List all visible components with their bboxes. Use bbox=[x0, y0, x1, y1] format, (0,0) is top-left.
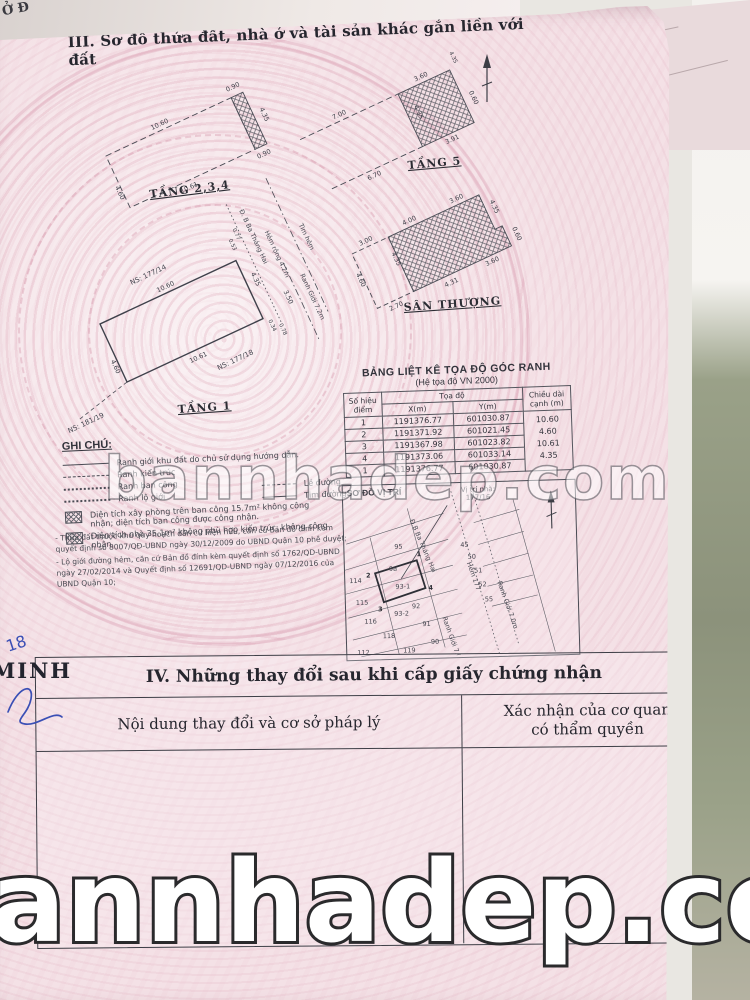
dim-t1-350: 3.50 bbox=[282, 289, 295, 306]
watermark-bottom: annhadep.com bbox=[0, 838, 750, 968]
section-4-title: IV. Những thay đổi sau khi cấp giấy chứn… bbox=[36, 652, 712, 699]
dim-t1-034: 0.34 bbox=[266, 319, 277, 333]
corner-3: 3 bbox=[378, 605, 383, 613]
subject-parcel-outline bbox=[375, 560, 426, 602]
parcel-55: 55 bbox=[485, 595, 494, 603]
parcel-91: 91 bbox=[422, 620, 431, 628]
label-ns-181-19: NS: 181/19 bbox=[67, 411, 106, 435]
solid-line-icon bbox=[63, 463, 109, 466]
signature bbox=[2, 680, 72, 730]
dim-st-ext-left: 4.60 bbox=[354, 272, 367, 289]
parcel-93-1: 93-1 bbox=[395, 582, 410, 590]
dim-t5-corner: 4.35 bbox=[447, 51, 458, 65]
parcel-114: 114 bbox=[349, 577, 362, 585]
north-arrow-icon bbox=[482, 54, 492, 102]
dim-st-step: 0.60 bbox=[510, 225, 523, 242]
watermark-middle: bannhadep.com bbox=[104, 444, 671, 514]
dotted-line-icon bbox=[64, 486, 110, 490]
parcel-50: 50 bbox=[468, 553, 477, 561]
col-confirm-header: Xác nhận của cơ quan có thẩm quyền bbox=[462, 693, 712, 748]
col-point: Số hiệu điểm bbox=[344, 392, 383, 417]
plan-t234: 10.60 0.90 4.35 0.90 10.61 4.60 bbox=[94, 74, 285, 221]
dim-t234-hatch-side: 4.35 bbox=[258, 106, 271, 123]
plan-label-t1: TẦNG 1 bbox=[177, 397, 232, 416]
dim-t1-right: 4.35 bbox=[249, 271, 262, 288]
label-tim-hem: Tim hẻm bbox=[296, 221, 316, 251]
hatch-swatch-icon bbox=[65, 511, 83, 524]
parcel-95: 95 bbox=[394, 543, 403, 551]
parcel-118: 118 bbox=[383, 632, 396, 640]
parcel-92: 92 bbox=[412, 602, 421, 610]
corner-2: 2 bbox=[366, 572, 371, 580]
map-ranh-gioi-label: Ranh Giới 7.0m bbox=[440, 616, 464, 659]
parcel-9a: 9a bbox=[389, 565, 397, 573]
dim-t1-left: 4.60 bbox=[109, 358, 122, 375]
dim-t234-hatch-bottom: 0.90 bbox=[256, 147, 273, 160]
corner-4: 4 bbox=[428, 584, 433, 592]
dim-st-ext-bottom: 2.70 bbox=[388, 300, 405, 313]
parcel-116: 116 bbox=[364, 617, 377, 625]
dim-t1-078: 0.78 bbox=[277, 323, 288, 337]
dim-t234-hatch-top: 0.90 bbox=[224, 80, 241, 93]
dim-st-right: 4.35 bbox=[488, 198, 501, 215]
dim-st-bottom: 4.31 bbox=[443, 276, 460, 289]
parcel-115: 115 bbox=[356, 599, 369, 607]
plan-label-t5: TẦNG 5 bbox=[407, 152, 462, 172]
map-hem-177-label: Hẻm 177 bbox=[465, 561, 483, 592]
dim-t5-ext-bottom: 6.70 bbox=[366, 169, 383, 182]
parcel-45: 45 bbox=[460, 541, 469, 549]
dim-st-ext-top: 3.00 bbox=[358, 234, 375, 247]
corner-1: 1 bbox=[416, 550, 421, 558]
plan-label-santhuong: SÂN THƯỢNG bbox=[403, 293, 501, 314]
dim-t5-right: 0.60 bbox=[467, 89, 480, 106]
dim-t234-left: 4.60 bbox=[113, 185, 126, 202]
plan-t5: 3.60 4.35 3.91 0.60 4.35 7.00 6.70 bbox=[293, 49, 491, 201]
label-ns-177-18: NS: 177/18 bbox=[216, 348, 255, 372]
dim-t1-top: 10.60 bbox=[155, 279, 175, 294]
dim-t5-ext-top: 7.00 bbox=[331, 108, 348, 121]
label-ranh-gioi-72: Ranh Giới 7.2m bbox=[298, 272, 326, 321]
parcel-93-2: 93-2 bbox=[394, 609, 409, 617]
parcel-90: 90 bbox=[431, 638, 440, 646]
dashed-line-icon bbox=[63, 475, 109, 478]
map-ranh-gioi-label: Ranh Giới 7.0m bbox=[495, 580, 519, 630]
dim-t234-top: 10.60 bbox=[150, 117, 170, 132]
col-length: Chiều dài cạnh (m) bbox=[522, 386, 571, 412]
col-changes-header: Nội dung thay đổi và cơ sở pháp lý bbox=[36, 695, 462, 752]
planning-notes: - Thửa đất thuộc khu quy hoạch dân cư hi… bbox=[55, 522, 357, 592]
